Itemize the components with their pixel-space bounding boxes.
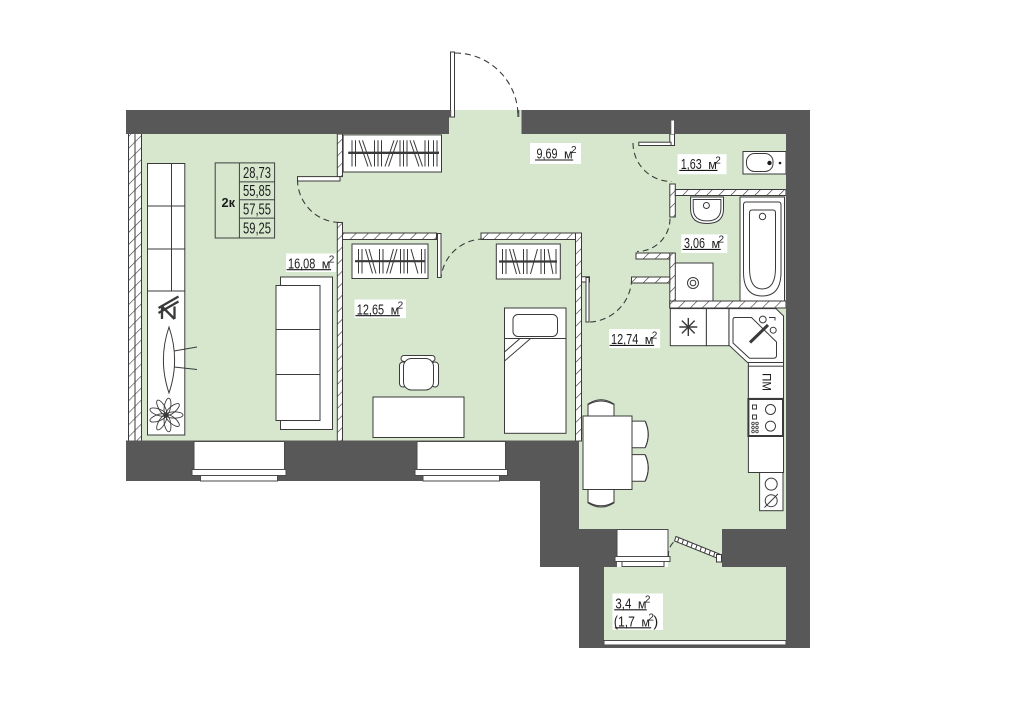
svg-text:): ) [653, 614, 658, 630]
svg-text:2: 2 [719, 234, 725, 245]
svg-text:2: 2 [329, 255, 335, 266]
svg-text:2к: 2к [222, 196, 236, 210]
svg-text:2: 2 [398, 301, 404, 312]
svg-text:59,25: 59,25 [243, 220, 271, 237]
svg-text:2: 2 [645, 595, 651, 606]
svg-text:2: 2 [571, 145, 577, 156]
svg-text:2: 2 [652, 330, 658, 341]
svg-text:28,73: 28,73 [243, 165, 271, 182]
svg-text:57,55: 57,55 [243, 201, 271, 218]
svg-text:2: 2 [715, 155, 721, 166]
svg-text:55,85: 55,85 [243, 183, 271, 200]
svg-text:ПМ: ПМ [760, 373, 772, 391]
